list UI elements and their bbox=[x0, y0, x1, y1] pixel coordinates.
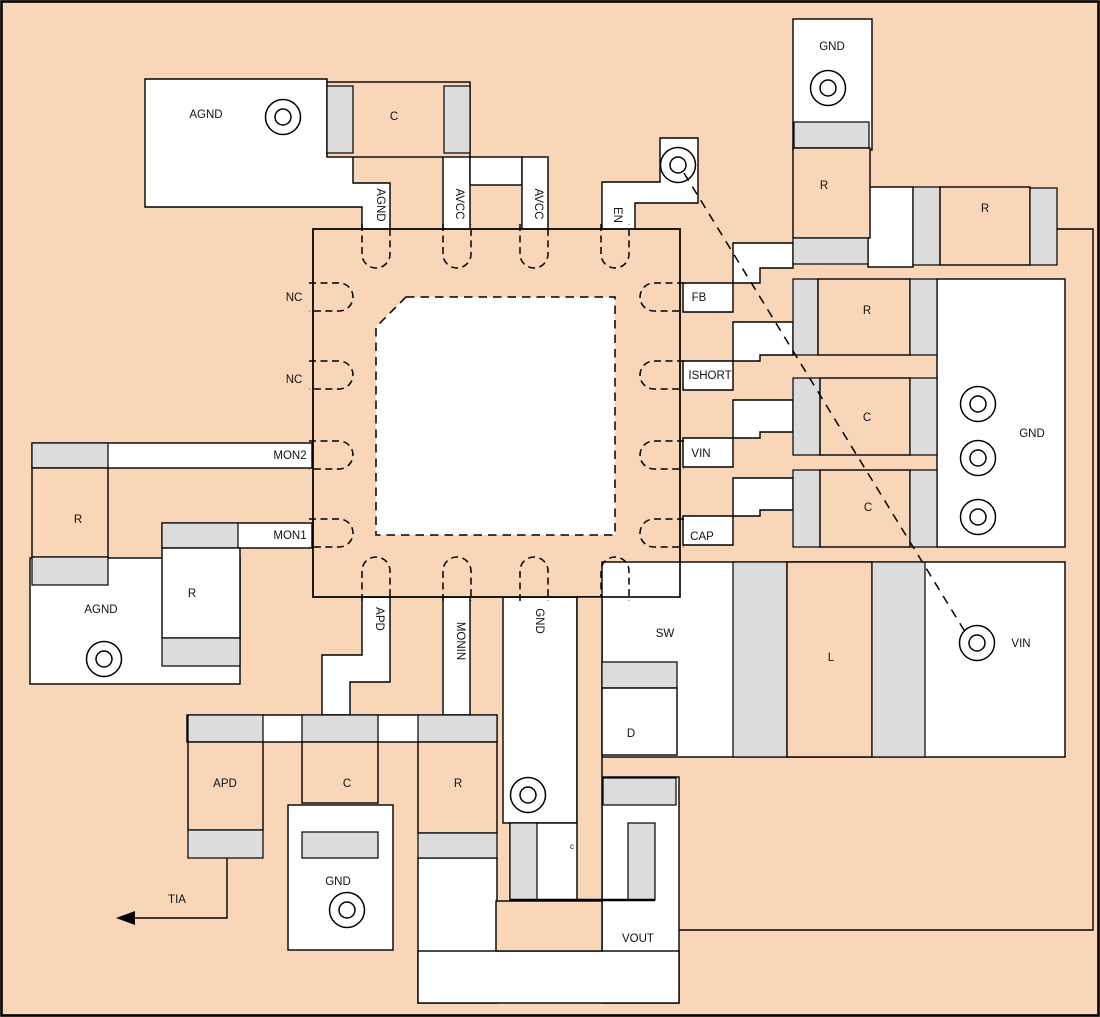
resistor-topright-v-body bbox=[793, 148, 870, 238]
inductor-pad-right bbox=[872, 562, 925, 757]
pin-label-cap: CAP bbox=[690, 531, 714, 543]
via-icon bbox=[511, 778, 546, 813]
cap-output-pad-left bbox=[510, 823, 537, 900]
avcc-connector-trace bbox=[470, 157, 522, 185]
via-icon bbox=[811, 71, 846, 106]
component-label: C bbox=[864, 502, 872, 514]
capacitor-right-2-pad-right bbox=[910, 470, 937, 547]
apd-pad-top bbox=[188, 715, 263, 742]
pin-label-avcc-2: AVCC bbox=[532, 188, 544, 219]
region-label-vout: VOUT bbox=[622, 933, 654, 945]
component-label-diode: D bbox=[627, 728, 635, 740]
via-icon bbox=[330, 893, 365, 928]
resistor-right-pad-right bbox=[910, 279, 937, 355]
component-label-small-c: c bbox=[570, 842, 574, 851]
component-label: R bbox=[74, 514, 82, 526]
vout-region-bottom-strip bbox=[418, 951, 679, 1003]
via-icon bbox=[661, 148, 696, 183]
pin-label-mon1: MON1 bbox=[273, 530, 306, 542]
inductor-pad-left bbox=[733, 562, 787, 757]
component-label: R bbox=[981, 203, 989, 215]
pin-label-monin: MONIN bbox=[454, 622, 466, 660]
component-label-inductor: L bbox=[828, 652, 835, 664]
resistor-topright-v-pad-bottom bbox=[793, 238, 868, 264]
trace-topright bbox=[868, 187, 913, 267]
resistor-left-2-pad-bottom bbox=[162, 638, 240, 666]
capacitor-bottom-pad-top bbox=[302, 715, 378, 742]
capacitor-topleft-pad-left bbox=[327, 86, 353, 153]
capacitor-topleft-pad-right bbox=[444, 86, 470, 153]
capacitor-bottom-body bbox=[302, 742, 378, 803]
via-icon bbox=[87, 642, 122, 677]
diode-pad-bottom bbox=[603, 778, 676, 805]
capacitor-right-1-pad-left bbox=[793, 378, 820, 455]
copper-band-center bbox=[577, 597, 602, 901]
via-icon bbox=[266, 100, 301, 135]
region-label: AGND bbox=[189, 109, 222, 121]
pin-label-nc-2: NC bbox=[286, 374, 303, 386]
pin-label-avcc-1: AVCC bbox=[453, 188, 465, 219]
resistor-bottom-pad-top bbox=[418, 715, 497, 742]
cap-output-pad-right bbox=[628, 823, 655, 900]
pin-label-ishort: ISHORT bbox=[688, 370, 731, 382]
region-label: AGND bbox=[84, 604, 117, 616]
component-label: C bbox=[390, 111, 398, 123]
component-label-apd: APD bbox=[213, 778, 237, 790]
pin-label-mon2: MON2 bbox=[273, 450, 306, 462]
net-label-tia: TIA bbox=[168, 894, 186, 906]
resistor-left-pad-top bbox=[32, 443, 108, 468]
diode-body bbox=[602, 688, 677, 755]
pin-label-gnd: GND bbox=[533, 608, 545, 634]
region-label: GND bbox=[325, 876, 351, 888]
resistor-topright-v-pad-top bbox=[794, 122, 869, 148]
region-label-sw: SW bbox=[656, 628, 675, 640]
region-label: GND bbox=[819, 41, 845, 53]
pin-label-fb: FB bbox=[692, 292, 707, 304]
gnd-region-right bbox=[937, 279, 1065, 547]
pcb-layout-figure: AGND C AGND AVCC AVCC EN GND R R NC NC M… bbox=[0, 0, 1100, 1017]
component-label: C bbox=[343, 778, 351, 790]
capacitor-right-2-pad-left bbox=[793, 470, 820, 547]
resistor-topright-h-pad-left bbox=[913, 187, 940, 265]
resistor-left-pad-bottom bbox=[32, 557, 108, 585]
pin-label-vin: VIN bbox=[691, 448, 710, 460]
component-label: R bbox=[863, 305, 871, 317]
resistor-topright-h-pad-right bbox=[1030, 188, 1057, 265]
apd-pad-bottom bbox=[188, 830, 263, 858]
copper-block-bottom bbox=[496, 901, 602, 951]
region-label-vin: VIN bbox=[1011, 638, 1030, 650]
capacitor-right-1-pad-right bbox=[910, 378, 937, 455]
capacitor-bottom-pad-bottom bbox=[302, 832, 378, 858]
ic-exposed-pad bbox=[376, 297, 615, 535]
resistor-left-2-body bbox=[162, 548, 240, 638]
pin-label-en: EN bbox=[611, 207, 623, 223]
region-label: GND bbox=[1019, 428, 1045, 440]
via-icon bbox=[961, 500, 996, 535]
component-label: R bbox=[820, 180, 828, 192]
pin-label-apd: APD bbox=[373, 607, 385, 631]
via-icon bbox=[961, 387, 996, 422]
resistor-bottom-pad-bottom bbox=[418, 833, 497, 858]
resistor-topright-h-body bbox=[940, 187, 1030, 265]
diode-pad-top bbox=[602, 662, 677, 688]
pin-label-nc-1: NC bbox=[286, 292, 303, 304]
pcb-layout-canvas: AGND C AGND AVCC AVCC EN GND R R NC NC M… bbox=[0, 0, 1100, 1017]
resistor-left-2-pad-top bbox=[162, 523, 238, 548]
via-icon bbox=[961, 441, 996, 476]
component-label: C bbox=[863, 412, 871, 424]
resistor-left-body bbox=[32, 468, 108, 557]
pin-label-agnd: AGND bbox=[374, 188, 386, 221]
component-label: R bbox=[188, 588, 196, 600]
component-label: R bbox=[454, 778, 462, 790]
resistor-right-body bbox=[818, 279, 910, 355]
resistor-right-pad-left bbox=[793, 279, 818, 355]
